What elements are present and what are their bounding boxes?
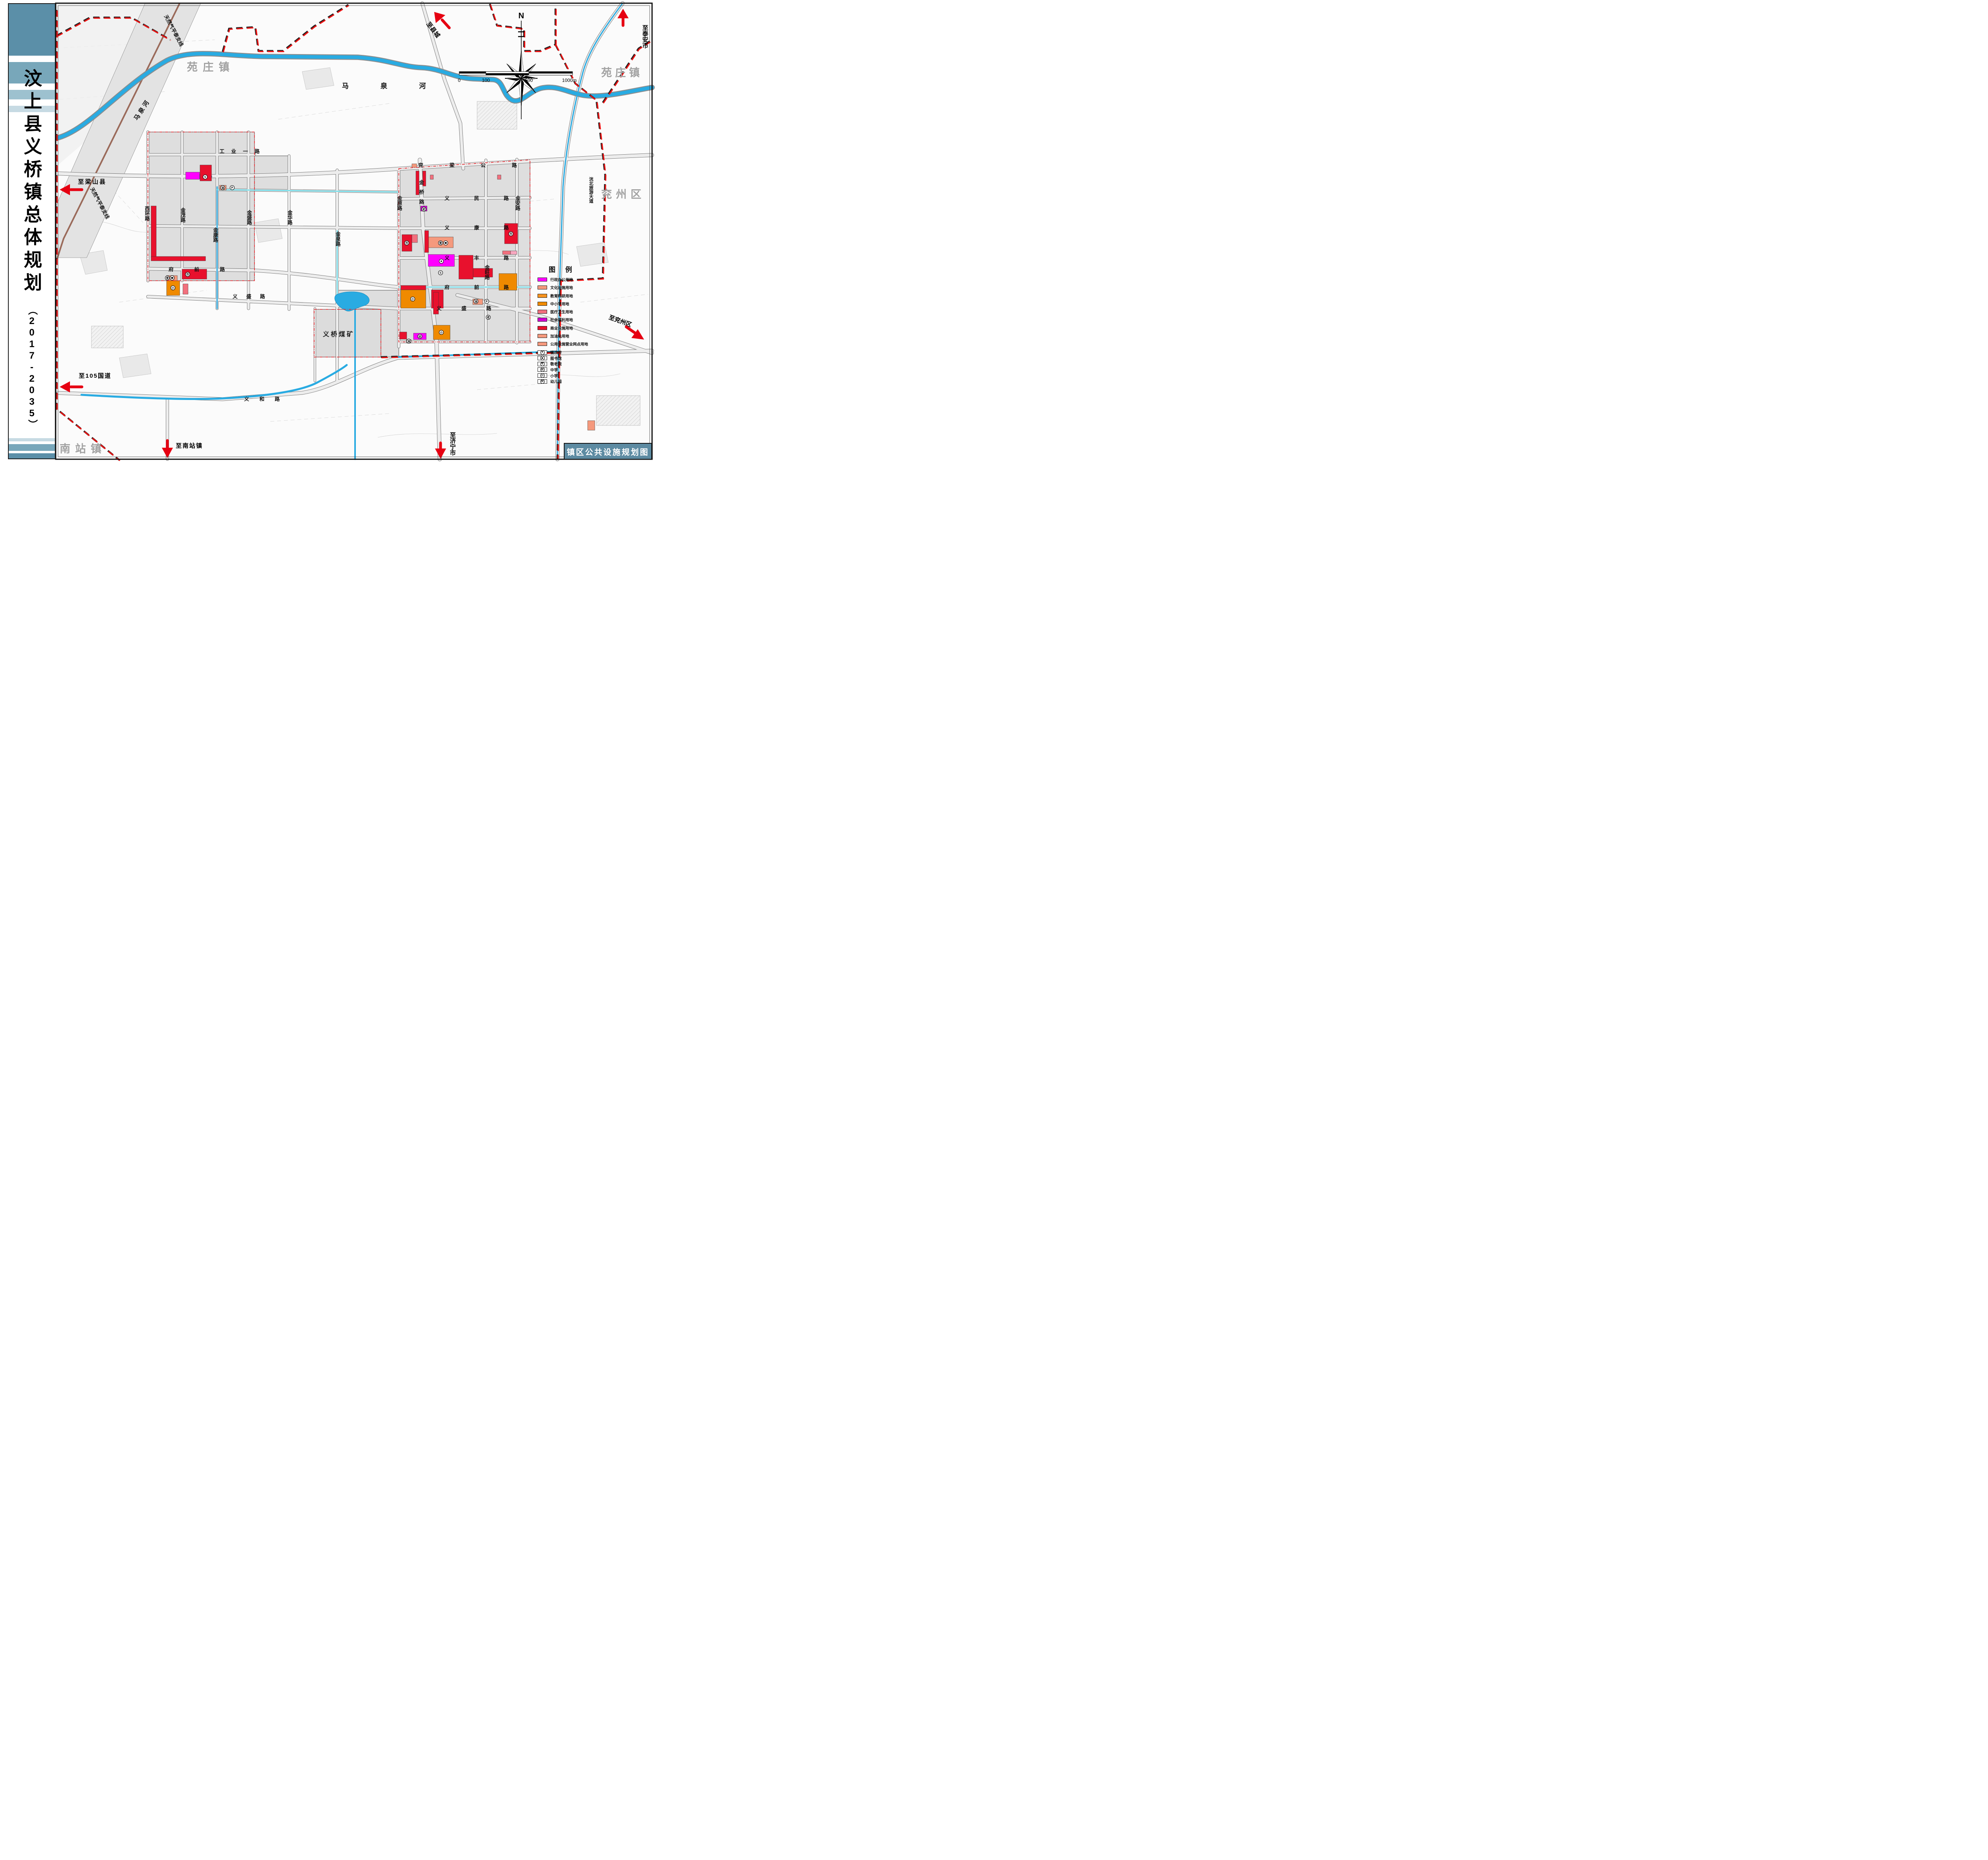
sidebar-stripe xyxy=(9,438,55,441)
legend-landuse-label: 行政办公用地 xyxy=(550,277,573,282)
road-label-jinsheng: 金盛路 xyxy=(246,210,252,225)
region-label-yanzhou: 兖州区 xyxy=(601,188,645,200)
legend-landuse-label: 文化设施用地 xyxy=(550,285,573,290)
map-symbol-S: S xyxy=(439,271,443,275)
scale-label-0: 0 xyxy=(458,78,461,83)
legend-landuse-row: 中小学用地 xyxy=(538,302,629,306)
legend-title: 图 例 xyxy=(549,264,629,274)
legend-landuse-row: 行政办公用地 xyxy=(538,278,629,282)
legend-symbol-icon: 老 xyxy=(538,362,547,366)
legend-landuse-row: 商业设施用地 xyxy=(538,326,629,330)
dest-label-nanzhan: 至南站镇 xyxy=(176,442,203,449)
road-label-jinqiao: 金桥路 xyxy=(418,179,424,209)
road-label-gongye: 工业一路 xyxy=(219,148,266,154)
road-label-xihuan: 西环路 xyxy=(144,206,149,221)
sheet-title: 镇区公共设施规划图 xyxy=(567,446,649,457)
map-symbol-老: 老 xyxy=(486,315,491,320)
svg-text:老: 老 xyxy=(487,316,490,319)
road-label-jinwang: 金旺路 xyxy=(484,264,490,280)
legend-landuse-label: 教育科研用地 xyxy=(550,293,573,299)
map-symbol-S: S xyxy=(203,175,208,179)
legend-landuse-label: 加油站用地 xyxy=(550,333,569,339)
svg-text:青: 青 xyxy=(166,276,169,280)
svg-text:★: ★ xyxy=(440,260,443,263)
legend-color-swatch xyxy=(538,285,547,289)
scale-label-1000m: 1000m xyxy=(562,78,577,83)
legend-color-swatch xyxy=(538,278,547,282)
legend-color-swatch xyxy=(538,342,547,346)
map-symbol-油: 油 xyxy=(407,339,411,344)
svg-text:市: 市 xyxy=(186,273,189,276)
region-label-nanzhan: 南站镇 xyxy=(60,443,106,455)
dest-label-liangshan: 至梁山县 xyxy=(78,178,107,185)
legend-symbol-row: ★ 镇政府 xyxy=(538,350,629,355)
legend-landuse-label: 医疗卫生用地 xyxy=(550,309,573,315)
legend-landuse-list: 行政办公用地 文化设施用地 教育科研用地 中小学用地 医疗卫生用地 社会福利用地… xyxy=(538,278,629,346)
road-label-guangbei: 洸北旅游大道 xyxy=(588,177,594,204)
dest-label-jining: 至济宁市 xyxy=(449,432,456,456)
map-symbol-青: 青 xyxy=(439,241,443,245)
map-symbol-小: 小 xyxy=(439,330,444,335)
legend-symbol-label: 小学 xyxy=(550,373,558,379)
legend-landuse-label: 社会福利用地 xyxy=(550,317,573,322)
map-symbol-油: 油 xyxy=(474,299,478,304)
road-label-jinquan: 金泉路 xyxy=(335,231,341,247)
road-label-fuqian-west: 府前路 xyxy=(169,266,246,272)
map-symbol-市: 市 xyxy=(405,241,409,245)
compass-north-label: N xyxy=(518,12,524,20)
sheet-title-bar: 镇区公共设施规划图 xyxy=(564,443,652,460)
road-label-yisheng-east: 义盛路 xyxy=(436,305,511,311)
legend-landuse-label: 公用设施营业网点用地 xyxy=(550,341,588,347)
road-label-jinhua: 金华路 xyxy=(287,210,293,225)
sidebar-stripe xyxy=(9,444,55,451)
legend-symbol-label: 镇政府 xyxy=(550,349,562,355)
road-label-yifeng: 义丰路 xyxy=(444,255,534,261)
legend-symbol-row: 幼 幼儿园 xyxy=(538,379,629,384)
legend-symbol-row: 初 中学 xyxy=(538,367,629,372)
map-symbol-市: 市 xyxy=(186,272,190,277)
road-label-jinmao: 金茂路 xyxy=(180,207,186,223)
svg-text:S: S xyxy=(440,272,442,275)
map-symbol-青: 青 xyxy=(165,276,170,280)
legend-symbol-icon: 小 xyxy=(538,373,547,378)
road-label-yanliang: 兖梁公路 xyxy=(418,162,543,168)
legend-landuse-label: 商业设施用地 xyxy=(550,325,573,331)
svg-text:S: S xyxy=(204,176,206,179)
legend-symbol-label: 中学 xyxy=(550,367,558,373)
legend-symbol-label: 图书馆 xyxy=(550,355,562,361)
sidebar-stripe xyxy=(9,453,55,458)
map-symbol-市: 市 xyxy=(509,232,513,236)
title-sidebar: 汶上县义桥镇总体规划 （2017-2035） xyxy=(8,3,56,459)
legend-color-swatch xyxy=(538,310,547,314)
svg-text:市: 市 xyxy=(510,232,513,236)
road-label-jinkang: 金康路 xyxy=(212,227,218,243)
legend-symbol-icon: 初 xyxy=(538,367,547,372)
legend-color-swatch xyxy=(538,302,547,306)
map-symbol-library xyxy=(170,276,175,280)
map-symbol-library xyxy=(444,241,448,245)
legend: 图 例 行政办公用地 文化设施用地 教育科研用地 中小学用地 医疗卫生用地 社会… xyxy=(538,264,629,385)
map-symbol-小: 小 xyxy=(171,286,175,290)
plan-subtitle: （2017-2035） xyxy=(25,305,39,430)
map-symbol-★: ★ xyxy=(439,259,444,264)
legend-symbol-row: 图书馆 xyxy=(538,356,629,360)
region-label-yuanzhuang-left: 苑庄镇 xyxy=(187,61,235,73)
legend-landuse-row: 文化设施用地 xyxy=(538,285,629,289)
svg-text:幼: 幼 xyxy=(419,335,421,338)
road-label-fuqian-east: 府前路 xyxy=(445,284,534,290)
legend-color-swatch xyxy=(538,326,547,330)
map-symbol-P: P xyxy=(230,186,235,190)
legend-landuse-row: 社会福利用地 xyxy=(538,318,629,322)
svg-text:青: 青 xyxy=(439,241,442,245)
svg-text:油: 油 xyxy=(475,300,478,303)
svg-text:小: 小 xyxy=(171,286,175,290)
scale-label-600: 600 xyxy=(525,78,533,83)
svg-text:小: 小 xyxy=(440,331,443,334)
legend-symbol-label: 幼儿园 xyxy=(550,379,562,384)
road-label-yikang: 义康路 xyxy=(444,225,534,231)
legend-symbols-list: ★ 镇政府 图书馆 老 敬老院 初 中学 小 小学 幼 幼儿园 xyxy=(538,350,629,384)
legend-symbol-icon: ★ xyxy=(538,350,547,355)
road-label-yisheng-west: 义盛路 xyxy=(232,293,274,299)
map-symbol-油: 油 xyxy=(221,186,225,190)
map-canvas: ★SS油油油PP市市市小小小初幼老青青 苑庄镇 苑庄镇 兖州区 南站镇 义桥煤矿… xyxy=(0,0,658,465)
legend-landuse-row: 教育科研用地 xyxy=(538,294,629,298)
plan-title: 汶上县义桥镇总体规划 xyxy=(19,69,45,295)
svg-text:P: P xyxy=(231,187,233,190)
map-symbol-P: P xyxy=(485,299,489,304)
road-label-jinan: 金安路 xyxy=(514,195,520,211)
svg-text:P: P xyxy=(486,301,488,303)
legend-symbol-row: 老 敬老院 xyxy=(538,362,629,366)
svg-text:小: 小 xyxy=(411,297,414,301)
legend-symbol-label: 敬老院 xyxy=(550,361,562,367)
dest-label-taian: 至泰安市 xyxy=(642,25,649,49)
map-symbol-小: 小 xyxy=(411,297,415,301)
legend-color-swatch xyxy=(538,334,547,338)
legend-landuse-row: 医疗卫生用地 xyxy=(538,310,629,314)
map-symbol-幼: 幼 xyxy=(418,334,422,339)
road-label-jinyuan: 金原路 xyxy=(396,195,402,211)
legend-symbol-icon xyxy=(538,356,547,360)
plan-sheet: 汶上县义桥镇总体规划 （2017-2035） xyxy=(0,0,658,465)
sidebar-stripe xyxy=(9,4,55,56)
legend-color-swatch xyxy=(538,294,547,298)
dest-label-g105: 至105国道 xyxy=(79,372,111,379)
svg-text:油: 油 xyxy=(408,340,410,343)
svg-text:市: 市 xyxy=(406,241,408,245)
legend-symbol-row: 小 小学 xyxy=(538,373,629,378)
scale-label-100: 100 xyxy=(482,78,490,83)
region-label-yuanzhuang-right: 苑庄镇 xyxy=(601,66,643,79)
legend-landuse-label: 中小学用地 xyxy=(550,301,569,307)
legend-landuse-row: 加油站用地 xyxy=(538,334,629,338)
road-label-yihe: 义和路 xyxy=(244,396,290,402)
legend-symbol-icon: 幼 xyxy=(538,379,547,384)
legend-color-swatch xyxy=(538,318,547,322)
river-label-maquan: 马泉河 xyxy=(342,82,458,90)
site-label-coal-mine: 义桥煤矿 xyxy=(323,330,355,338)
svg-text:油: 油 xyxy=(221,186,224,190)
legend-landuse-row: 公用设施营业网点用地 xyxy=(538,342,629,346)
